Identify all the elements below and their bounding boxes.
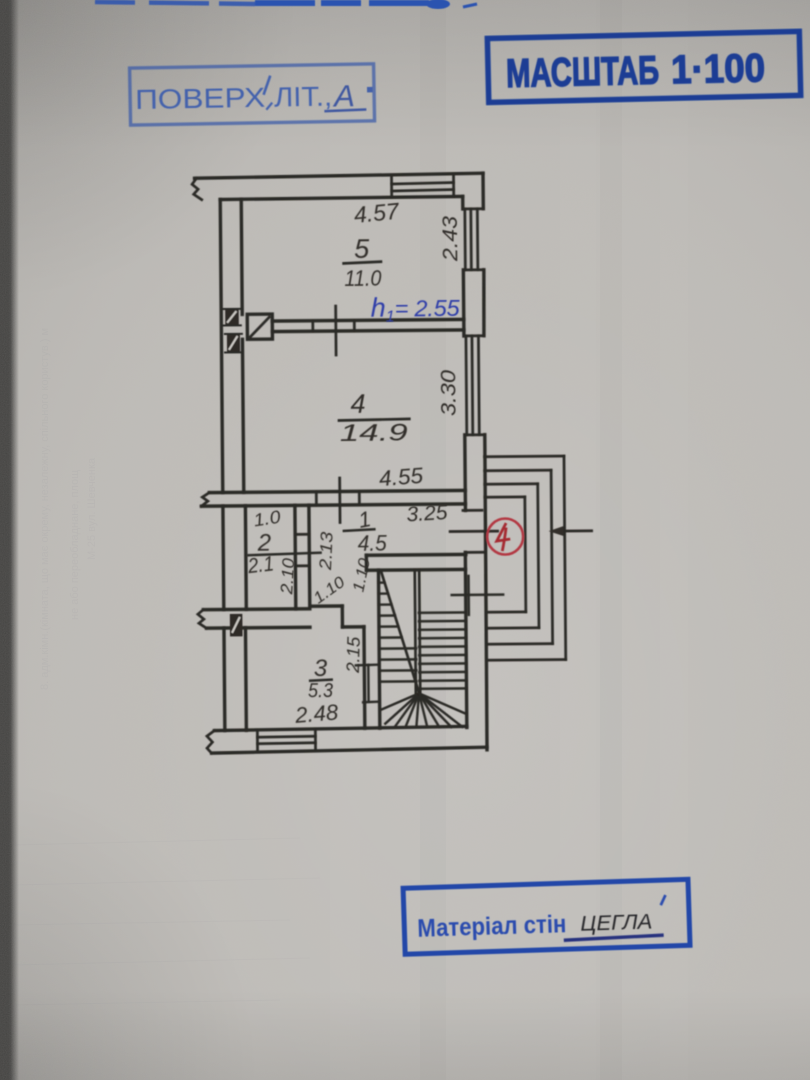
svg-text:5.3: 5.3 [308, 680, 333, 702]
svg-text:11.0: 11.0 [344, 266, 382, 291]
svg-text:4.5: 4.5 [358, 531, 388, 556]
svg-text:4.57: 4.57 [353, 198, 401, 228]
svg-text:14.9: 14.9 [340, 419, 408, 447]
svg-text:ЦЕГЛА: ЦЕГЛА [580, 910, 653, 935]
svg-text:3.25: 3.25 [406, 501, 449, 526]
svg-text:3: 3 [314, 655, 328, 682]
svg-text:А: А [332, 78, 355, 113]
svg-text:ПОВЕРХ: ПОВЕРХ [135, 82, 266, 115]
svg-text:3.30: 3.30 [437, 370, 460, 417]
svg-text:Матеріал стін: Матеріал стін [417, 910, 567, 943]
svg-text:2.13: 2.13 [316, 531, 337, 572]
svg-text:МАСШТАБ: МАСШТАБ [506, 49, 660, 96]
svg-text:4.55: 4.55 [378, 463, 425, 491]
svg-text:1·100: 1·100 [671, 46, 766, 92]
svg-text:2.10: 2.10 [277, 557, 298, 596]
svg-text:5: 5 [354, 234, 370, 264]
svg-text:4: 4 [350, 389, 365, 419]
svg-text:2.43: 2.43 [439, 216, 462, 263]
svg-text:2.15: 2.15 [343, 635, 364, 674]
svg-text:ЛІТ.,: ЛІТ., [274, 81, 333, 113]
svg-text:2.48: 2.48 [293, 699, 340, 727]
svg-text:h1= 2.55: h1= 2.55 [371, 292, 461, 326]
svg-text:2.1: 2.1 [246, 552, 275, 578]
svg-text:1.0: 1.0 [252, 507, 282, 531]
